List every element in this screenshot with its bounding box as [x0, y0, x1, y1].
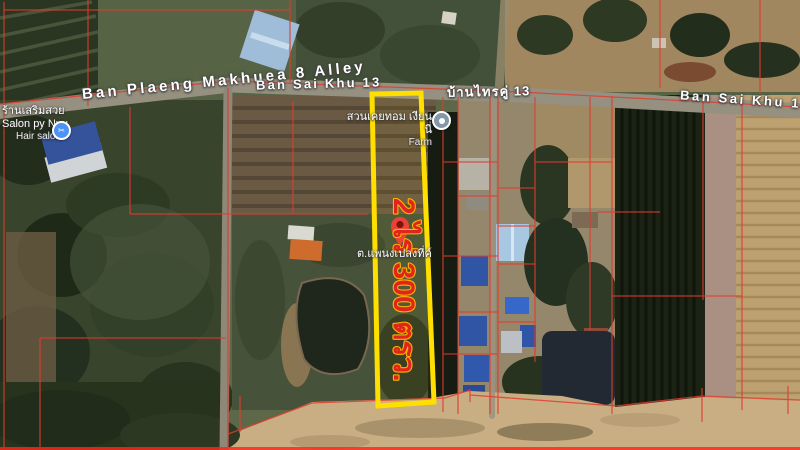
satellite-imagery: 2 ไร่ 300 ตรว. — [0, 0, 800, 450]
road-label-ban-sai-khu-13-thai: บ้านไทรคู่ 13 — [447, 80, 531, 102]
pin-place-label: ต.แพนงเปลงที่ค์ — [357, 248, 432, 261]
parcel-area-text: 2 ไร่ 300 ตรว. — [387, 198, 422, 382]
farm-thai-name: สวนเคยทอม เงียนนี่ — [342, 111, 432, 137]
hair-salon-poi-icon[interactable]: ✂ — [52, 121, 71, 140]
generic-poi-icon[interactable] — [432, 111, 451, 130]
farm-place-label: สวนเคยทอม เงียนนี่ Farm — [342, 111, 432, 149]
farm-category: Farm — [342, 137, 432, 149]
google-maps-satellite-view[interactable]: 2 ไร่ 300 ตรว. Ban Plaeng Makhuea 8 Alle… — [0, 0, 800, 450]
salon-thai-name: ร้านเสริมสวย — [2, 105, 68, 118]
